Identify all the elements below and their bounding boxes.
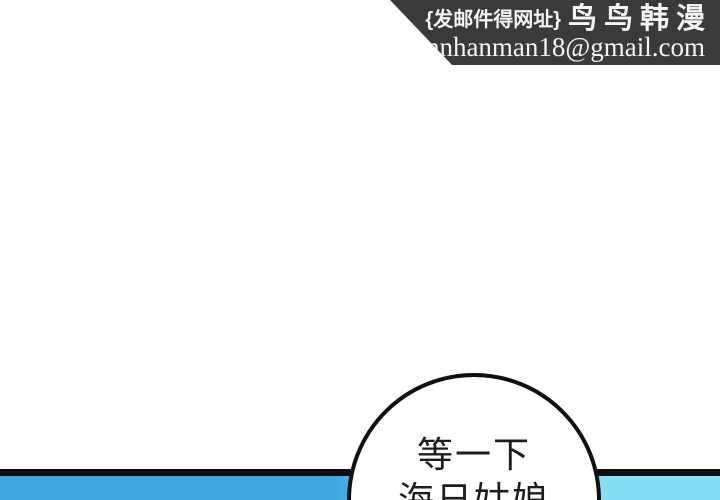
watermark-banner-line1: {发邮件得网址} 鸟鸟韩漫 bbox=[425, 5, 705, 34]
banner-email-text: nnhanman18@gmail.com bbox=[426, 33, 705, 62]
speech-bubble-line-1: 等一下 bbox=[351, 432, 597, 477]
speech-bubble-line-2: 海日姑娘 bbox=[351, 477, 597, 500]
speech-bubble-text: 等一下 海日姑娘 bbox=[351, 432, 597, 500]
banner-promo-text: {发邮件得网址} bbox=[425, 7, 561, 34]
banner-brand-text: 鸟鸟韩漫 bbox=[568, 5, 712, 34]
speech-bubble: 等一下 海日姑娘 bbox=[347, 373, 601, 500]
comic-page: {发邮件得网址} 鸟鸟韩漫 nnhanman18@gmail.com 等一下 海… bbox=[0, 0, 720, 500]
watermark-banner: {发邮件得网址} 鸟鸟韩漫 nnhanman18@gmail.com bbox=[0, 0, 720, 65]
